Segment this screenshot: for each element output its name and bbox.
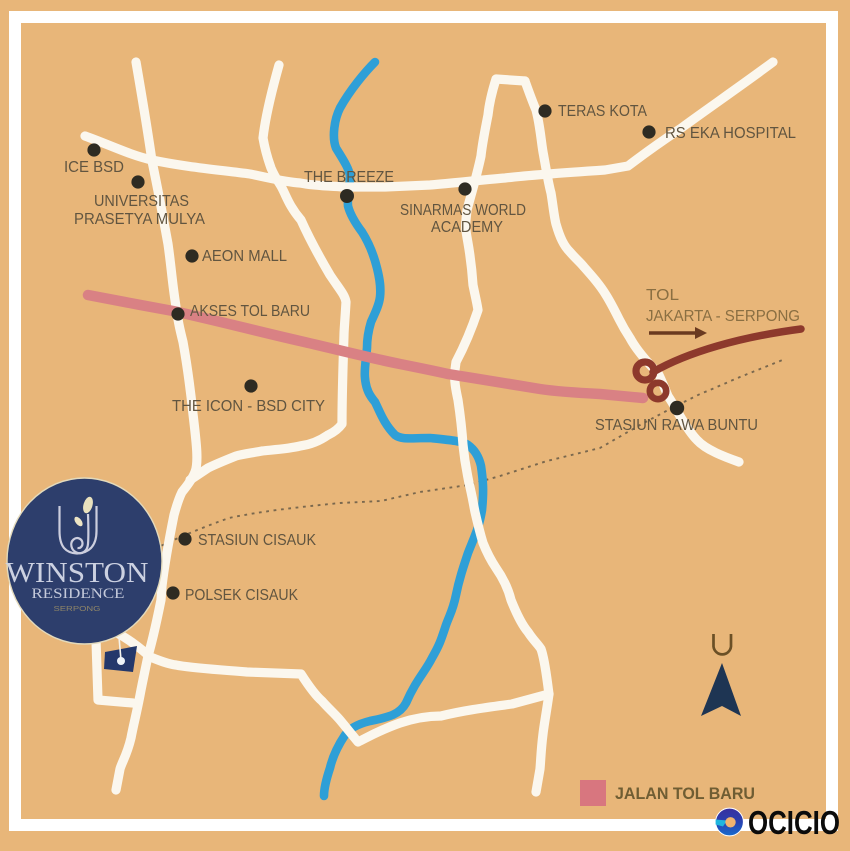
svg-text:UNIVERSITAS: UNIVERSITAS [94,193,189,210]
svg-text:SERPONG: SERPONG [54,604,101,613]
svg-text:PRASETYA MULYA: PRASETYA MULYA [74,211,206,228]
svg-text:TOL: TOL [646,287,679,304]
svg-text:RS EKA HOSPITAL: RS EKA HOSPITAL [665,125,796,142]
svg-text:THE BREEZE: THE BREEZE [304,169,394,186]
svg-text:ICE BSD: ICE BSD [64,159,124,176]
svg-text:ACADEMY: ACADEMY [431,219,503,236]
svg-text:AEON MALL: AEON MALL [202,248,287,265]
svg-text:OCICIO: OCICIO [748,804,840,841]
svg-text:JAKARTA - SERPONG: JAKARTA - SERPONG [646,308,800,325]
svg-text:STASIUN RAWA BUNTU: STASIUN RAWA BUNTU [595,417,758,434]
svg-text:JALAN TOL BARU: JALAN TOL BARU [615,784,755,803]
svg-text:SINARMAS WORLD: SINARMAS WORLD [400,202,526,219]
svg-text:TERAS KOTA: TERAS KOTA [558,103,648,120]
svg-text:RESIDENCE: RESIDENCE [32,586,125,602]
svg-text:WINSTON: WINSTON [6,557,149,589]
svg-text:POLSEK CISAUK: POLSEK CISAUK [185,587,299,604]
svg-text:THE ICON - BSD CITY: THE ICON - BSD CITY [172,398,325,415]
svg-text:STASIUN CISAUK: STASIUN CISAUK [198,532,317,549]
svg-text:AKSES TOL BARU: AKSES TOL BARU [190,303,310,320]
